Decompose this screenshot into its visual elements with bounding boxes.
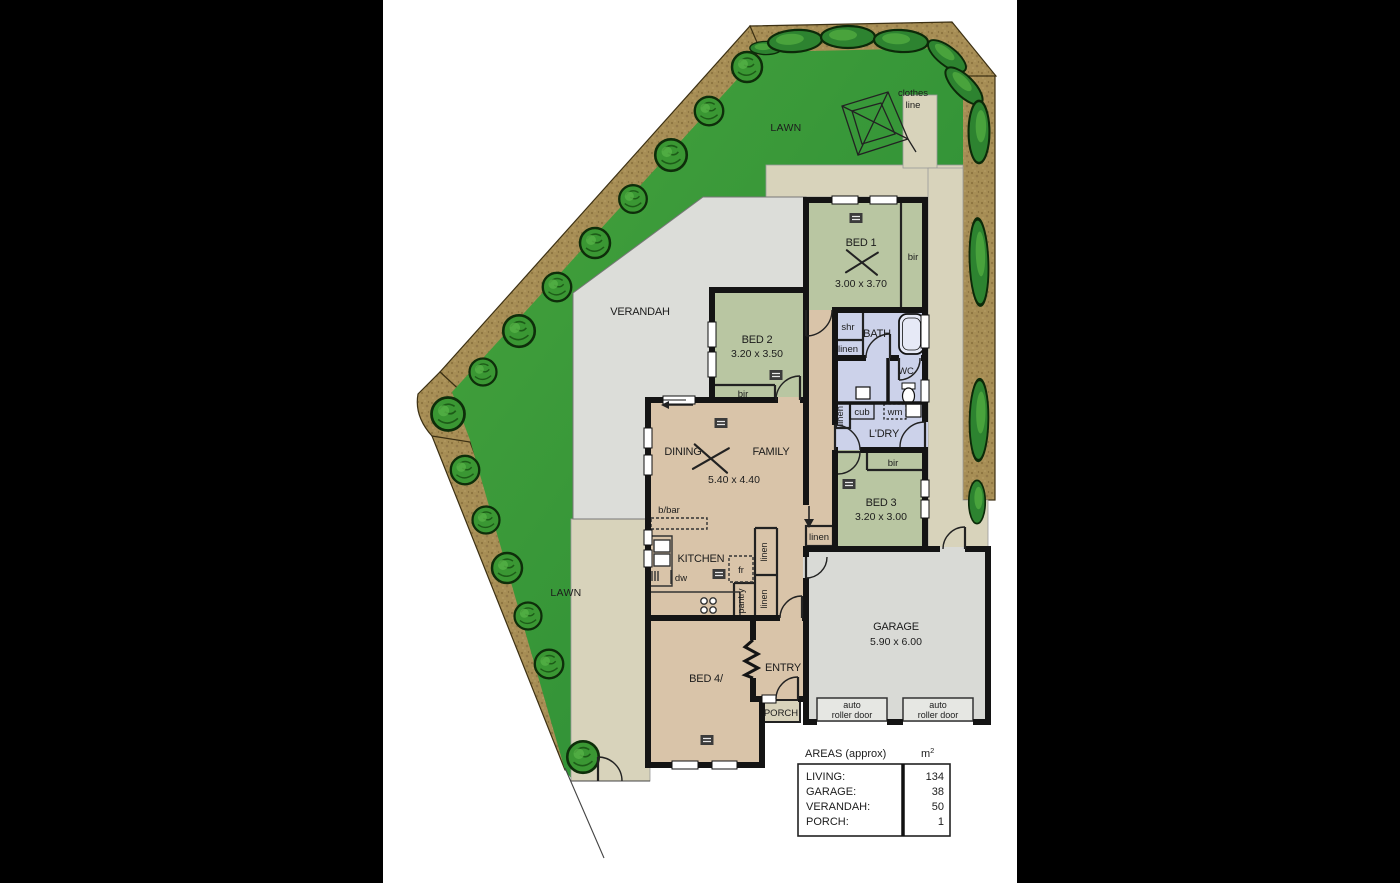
area-row-value: 134 [926, 771, 944, 783]
roller-door-right-line1: auto [929, 700, 947, 710]
window [762, 695, 776, 703]
floorplan-page: LAWN LAWN clothes line VERANDAH BED 1 3.… [0, 0, 1400, 883]
area-row-value: 1 [938, 816, 944, 828]
area-row-label: PORCH: [806, 816, 849, 828]
tree [515, 603, 542, 630]
tree [619, 185, 647, 213]
heater-vent-icon [701, 735, 714, 745]
dining-family-dims: 5.40 x 4.40 [708, 474, 760, 486]
heater-vent-icon [850, 213, 863, 223]
laundry-label: L'DRY [869, 428, 900, 440]
hallway [806, 310, 835, 546]
shower-label: shr [841, 322, 854, 333]
area-row-label: VERANDAH: [806, 801, 870, 813]
bed3-dims: 3.20 x 3.00 [855, 511, 907, 523]
window [921, 315, 929, 348]
tree [432, 398, 465, 431]
window [708, 352, 716, 377]
bed2-dims: 3.20 x 3.50 [731, 348, 783, 360]
hall-linen-label: linen [809, 532, 829, 543]
breakfast-bar-label: b/bar [658, 505, 680, 516]
pantry-label: pantry [736, 588, 746, 614]
area-row-value: 50 [932, 801, 944, 813]
porch-label: PORCH [764, 708, 798, 719]
heater-vent-icon [713, 569, 726, 579]
oven-icon [654, 554, 670, 566]
cupboard-label: cub [854, 407, 869, 418]
wc-label: WC [898, 366, 914, 377]
window [921, 500, 929, 518]
tree [543, 273, 572, 302]
oven-icon [654, 540, 670, 552]
window [644, 530, 652, 545]
bed4-label: BED 4/ [689, 673, 724, 685]
bath-label: BATH [863, 328, 891, 340]
window [708, 322, 716, 347]
heater-vent-icon [843, 479, 856, 489]
hedge-bush [969, 101, 990, 163]
verandah-label: VERANDAH [610, 306, 670, 318]
lawn-label-left: LAWN [550, 587, 581, 599]
window [644, 455, 652, 475]
washing-machine-label: wm [887, 407, 903, 418]
window [921, 480, 929, 497]
window [870, 196, 897, 204]
tree [655, 139, 687, 171]
hedge-bush [969, 379, 989, 460]
area-row-label: LIVING: [806, 771, 845, 783]
dishwasher-label: dw [675, 573, 687, 584]
lawn-label-top: LAWN [770, 122, 801, 134]
window [832, 196, 858, 204]
dining-label: DINING [664, 446, 701, 458]
bed1-dims: 3.00 x 3.70 [835, 278, 887, 290]
hedge-bush [821, 26, 875, 48]
tree [732, 52, 762, 82]
tree [567, 741, 599, 773]
bed2-bir-label: bir [738, 389, 749, 400]
laundry-trough-icon [906, 403, 921, 417]
tree [470, 359, 497, 386]
garage-room [803, 547, 988, 722]
bed3-label: BED 3 [866, 497, 897, 509]
bed3-bir-label: bir [888, 458, 899, 469]
fridge-label: fr [738, 565, 744, 576]
heater-vent-icon [715, 418, 728, 428]
garage-dims: 5.90 x 6.00 [870, 636, 922, 648]
window [644, 428, 652, 448]
tree [473, 507, 500, 534]
clothesline-label-1: clothes [898, 88, 928, 99]
window [644, 550, 652, 567]
kitchen-linen-label-1: linen [759, 542, 769, 561]
tree [492, 553, 522, 583]
tree [695, 97, 724, 126]
floorplan-svg: LAWN LAWN clothes line VERANDAH BED 1 3.… [0, 0, 1400, 883]
area-row-label: GARAGE: [806, 786, 856, 798]
tree [503, 315, 535, 347]
heater-vent-icon [770, 370, 783, 380]
kitchen-linen-label-2: linen [759, 589, 769, 608]
area-row-value: 38 [932, 786, 944, 798]
vanity-icon [856, 387, 870, 399]
bed1-label: BED 1 [846, 237, 877, 249]
bed2-label: BED 2 [742, 334, 773, 346]
clothesline-label-2: line [906, 100, 921, 111]
window [712, 761, 737, 769]
laundry-linen-label: linen [835, 406, 846, 426]
tree [451, 456, 480, 485]
roller-door-right-line2: roller door [918, 710, 959, 720]
roller-door-left-line1: auto [843, 700, 861, 710]
areas-table-title: AREAS (approx) [805, 748, 886, 760]
kitchen-label: KITCHEN [678, 553, 725, 565]
entry-label: ENTRY [765, 662, 802, 674]
garage-label: GARAGE [873, 621, 919, 633]
tree [580, 228, 610, 258]
bath-linen-label: linen [838, 344, 858, 355]
roller-door-left-line2: roller door [832, 710, 873, 720]
hedge-bush [969, 480, 986, 523]
bed1-bir-label: bir [908, 252, 919, 263]
window [921, 380, 929, 402]
family-label: FAMILY [752, 446, 790, 458]
tree [535, 650, 564, 679]
window [672, 761, 698, 769]
